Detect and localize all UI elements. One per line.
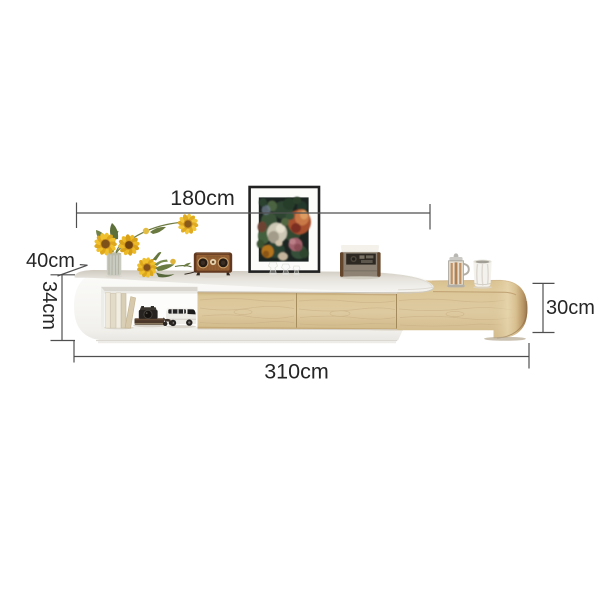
svg-text:40cm: 40cm xyxy=(26,250,75,272)
svg-text:34cm: 34cm xyxy=(38,281,60,330)
svg-text:310cm: 310cm xyxy=(264,360,329,384)
svg-text:180cm: 180cm xyxy=(170,186,235,210)
svg-text:30cm: 30cm xyxy=(546,297,595,319)
